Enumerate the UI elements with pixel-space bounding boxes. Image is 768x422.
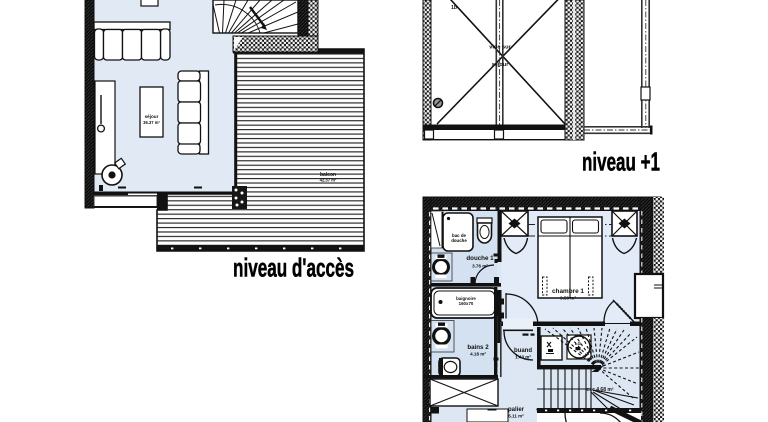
svg-text:1b: 1b xyxy=(451,5,457,11)
svg-text:séjour: séjour xyxy=(145,114,159,119)
svg-text:5.11 m²: 5.11 m² xyxy=(508,414,524,419)
svg-text:douche 1: douche 1 xyxy=(466,255,494,262)
svg-text:vide sur: vide sur xyxy=(489,45,511,51)
svg-text:palier: palier xyxy=(508,407,525,413)
svg-text:douche: douche xyxy=(451,238,467,243)
svg-text:niveau +1: niveau +1 xyxy=(582,147,660,177)
svg-text:1.43 m²: 1.43 m² xyxy=(515,355,531,360)
svg-text:chambre 1: chambre 1 xyxy=(552,288,584,295)
svg-text:4.18 m²: 4.18 m² xyxy=(470,352,486,357)
svg-text:36.37 m²: 36.37 m² xyxy=(143,120,160,125)
svg-text:bains 2: bains 2 xyxy=(467,344,489,351)
svg-text:160x70: 160x70 xyxy=(459,301,474,306)
svg-text:esc 4.68 m²: esc 4.68 m² xyxy=(587,387,614,393)
svg-text:9.50 m²: 9.50 m² xyxy=(560,296,576,301)
svg-text:séjour: séjour xyxy=(492,62,510,68)
svg-text:buand: buand xyxy=(514,348,532,354)
svg-text:niveau d'accès: niveau d'accès xyxy=(233,253,354,283)
svg-text:3.76 m²: 3.76 m² xyxy=(472,264,488,269)
svg-text:42.37 m²: 42.37 m² xyxy=(320,178,337,183)
